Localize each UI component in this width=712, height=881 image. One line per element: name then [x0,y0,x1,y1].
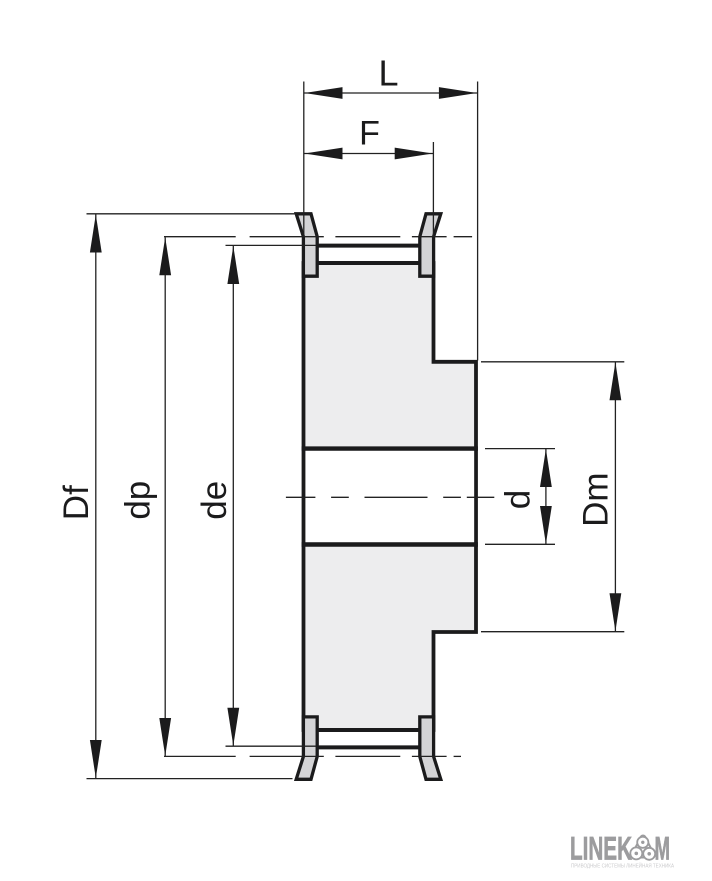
svg-text:LINEK: LINEK [570,831,632,867]
svg-text:F: F [359,114,380,152]
svg-text:L: L [378,52,398,93]
svg-text:M: M [655,831,671,867]
svg-text:Dm: Dm [577,472,616,526]
svg-text:de: de [195,481,234,520]
svg-text:ПРИВОДНЫЕ СИСТЕМЫ ЛИНЕЙНАЯ ТЕ: ПРИВОДНЫЕ СИСТЕМЫ ЛИНЕЙНАЯ ТЕХНИКА [571,861,674,869]
svg-text:d: d [499,490,538,509]
svg-text:Df: Df [57,485,96,520]
svg-text:dp: dp [119,481,158,520]
